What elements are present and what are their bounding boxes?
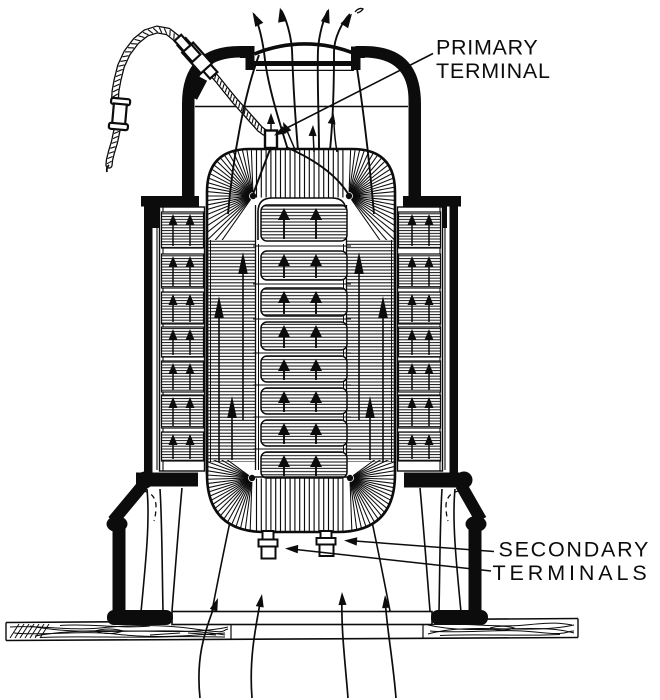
svg-text:TERMINALS: TERMINALS	[493, 561, 651, 585]
svg-text:TERMINAL: TERMINAL	[436, 59, 551, 83]
svg-text:PRIMARY: PRIMARY	[436, 36, 538, 60]
svg-text:SECONDARY: SECONDARY	[499, 538, 651, 562]
